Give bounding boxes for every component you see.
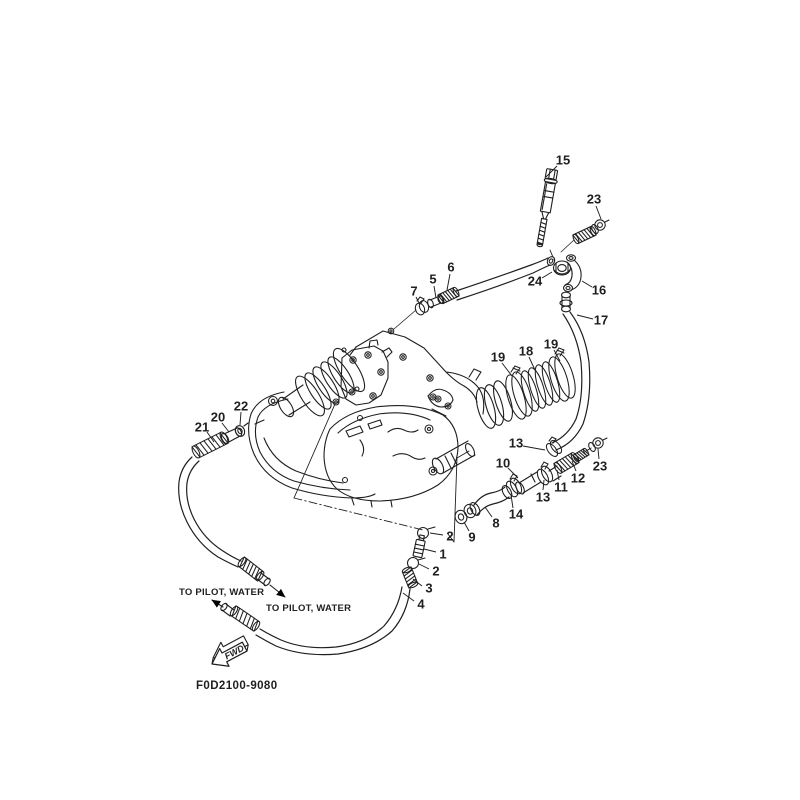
- callout-7: 7: [410, 284, 420, 306]
- callout-8: 8: [485, 507, 500, 531]
- callout-number: 20: [211, 410, 225, 425]
- callout-6: 6: [447, 260, 455, 291]
- callout-24: 24: [528, 272, 552, 289]
- fwd-direction-arrow: FWD: [205, 632, 253, 673]
- callout-number: 11: [554, 480, 568, 495]
- callout-number: 2: [446, 529, 453, 544]
- callout-number: 3: [425, 581, 432, 596]
- callout-number: 15: [556, 153, 570, 168]
- pilot-water-labels: TO PILOT, WATERTO PILOT, WATER: [179, 587, 351, 614]
- callout-number: 9: [468, 530, 475, 545]
- callout-number: 17: [594, 313, 608, 328]
- parts-diagram-canvas: 1523241617657191819222021131012112313148…: [0, 0, 800, 800]
- pilot-water-label-1: TO PILOT, WATER: [179, 587, 264, 598]
- callout-number: 18: [519, 344, 533, 359]
- callout-20: 20: [211, 410, 229, 433]
- callout-4: 4: [403, 593, 425, 612]
- callout-3: 3: [413, 579, 433, 596]
- hardware-line-art: [190, 220, 609, 632]
- callout-number: 22: [234, 399, 248, 414]
- callout-1: 1: [424, 547, 447, 562]
- callout-5: 5: [429, 272, 436, 299]
- callout-number: 12: [571, 471, 585, 486]
- callout-number: 2: [432, 564, 439, 579]
- callout-number: 16: [592, 283, 606, 298]
- callout-number: 1: [439, 547, 446, 562]
- callout-number: 23: [587, 192, 601, 207]
- part-code-text: F0D2100-9080: [196, 680, 278, 692]
- callout-number: 13: [509, 436, 523, 451]
- callout-number: 10: [496, 456, 510, 471]
- callout-number: 24: [528, 274, 543, 289]
- callout-23: 23: [587, 192, 601, 220]
- callout-16: 16: [582, 281, 606, 298]
- callout-13: 13: [509, 436, 545, 451]
- pilot-water-label-2: TO PILOT, WATER: [266, 603, 351, 614]
- callout-2: 2: [419, 564, 440, 579]
- callout-number: 14: [509, 507, 524, 522]
- callout-14: 14: [509, 495, 524, 522]
- callout-number: 21: [195, 420, 209, 435]
- callout-number: 7: [410, 284, 417, 299]
- callout-22: 22: [234, 399, 248, 426]
- callout-number: 19: [491, 350, 505, 365]
- callout-number: 8: [492, 516, 499, 531]
- callout-19: 19: [491, 350, 512, 377]
- parts-diagram-page: 1523241617657191819222021131012112313148…: [0, 0, 800, 800]
- callout-17: 17: [577, 313, 608, 328]
- callout-9: 9: [464, 522, 476, 545]
- callout-number: 4: [417, 597, 425, 612]
- callout-18: 18: [519, 344, 535, 371]
- callout-10: 10: [496, 456, 518, 479]
- callout-number: 6: [447, 260, 454, 275]
- callout-15: 15: [546, 153, 570, 178]
- callout-number: 5: [429, 272, 436, 287]
- callout-number: 19: [544, 337, 558, 352]
- callout-number: 23: [593, 459, 607, 474]
- callout-number: 13: [536, 490, 550, 505]
- callout-2: 2: [430, 529, 454, 544]
- callout-23: 23: [593, 449, 607, 474]
